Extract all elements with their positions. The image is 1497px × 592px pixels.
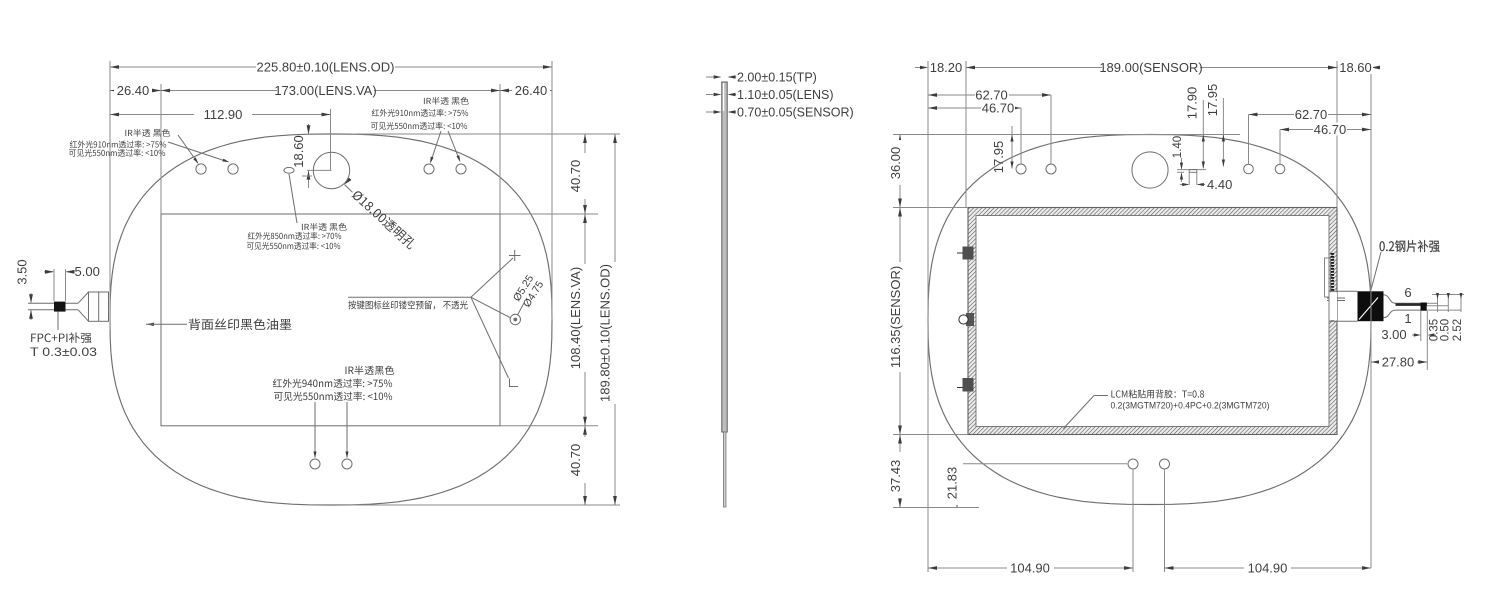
svg-text:2.00±0.15(TP): 2.00±0.15(TP) [737,71,817,85]
svg-text:3.00: 3.00 [1381,327,1406,342]
svg-text:112.90: 112.90 [204,107,243,122]
svg-text:40.70: 40.70 [568,160,583,193]
svg-text:T 0.3±0.03: T 0.3±0.03 [30,347,97,359]
svg-text:225.80±0.10(LENS.OD): 225.80±0.10(LENS.OD) [257,60,395,75]
svg-text:104.90: 104.90 [1010,561,1050,576]
svg-text:108.40(LENS.VA): 108.40(LENS.VA) [568,267,583,369]
svg-text:6: 6 [1404,285,1411,300]
svg-text:46.70: 46.70 [1314,122,1347,137]
svg-text:189.00(SENSOR): 189.00(SENSOR) [1099,60,1202,75]
svg-text:173.00(LENS.VA): 173.00(LENS.VA) [274,83,376,98]
svg-text:1.40: 1.40 [1172,136,1184,158]
svg-text:1.10±0.05(LENS): 1.10±0.05(LENS) [737,88,834,102]
svg-text:18.20: 18.20 [930,60,963,75]
svg-text:37.43: 37.43 [888,460,903,493]
svg-text:26.40: 26.40 [515,83,548,98]
svg-text:17.90: 17.90 [1185,87,1200,120]
svg-text:0.70±0.05(SENSOR): 0.70±0.05(SENSOR) [737,106,854,120]
svg-text:116.35(SENSOR): 116.35(SENSOR) [888,266,903,368]
svg-text:2.52: 2.52 [1452,319,1464,341]
svg-text:21.83: 21.83 [945,467,960,500]
svg-text:18.60: 18.60 [1339,60,1372,75]
svg-text:104.90: 104.90 [1248,561,1288,576]
svg-text:0.2(3MGTM720)+0.4PC+0.2(3MGTM7: 0.2(3MGTM720)+0.4PC+0.2(3MGTM720) [1111,401,1270,412]
svg-text:0.50: 0.50 [1439,319,1451,341]
svg-text:27.80: 27.80 [1382,355,1415,370]
svg-text:17.95: 17.95 [1205,84,1220,117]
svg-text:40.70: 40.70 [568,444,583,477]
svg-text:18.60: 18.60 [291,135,306,168]
svg-text:4.40: 4.40 [1207,177,1232,192]
svg-text:36.00: 36.00 [888,147,903,180]
svg-text:62.70: 62.70 [1295,107,1328,122]
svg-text:5.00: 5.00 [75,264,100,279]
svg-text:26.40: 26.40 [117,83,150,98]
svg-text:46.70: 46.70 [982,101,1015,116]
svg-text:17.95: 17.95 [991,141,1006,174]
svg-text:3.50: 3.50 [15,259,30,284]
svg-text:189.80±0.10(LENS.OD): 189.80±0.10(LENS.OD) [598,264,613,402]
svg-text:1: 1 [1404,311,1411,326]
